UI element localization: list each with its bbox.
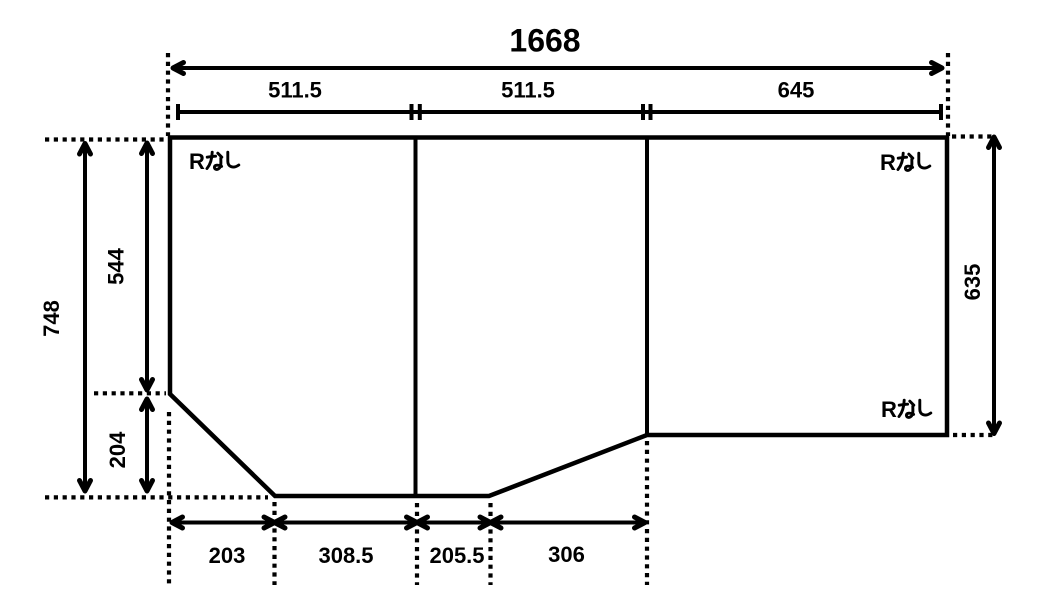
svg-text:306: 306 (548, 542, 585, 567)
svg-text:R: R (880, 150, 896, 175)
svg-text:1668: 1668 (509, 23, 580, 59)
svg-text:308.5: 308.5 (318, 543, 373, 568)
svg-text:203: 203 (209, 543, 246, 568)
svg-text:635: 635 (960, 264, 985, 301)
svg-text:205.5: 205.5 (429, 543, 484, 568)
svg-text:511.5: 511.5 (268, 78, 322, 103)
svg-text:R: R (189, 149, 205, 174)
svg-text:204: 204 (105, 431, 130, 468)
svg-text:511.5: 511.5 (501, 78, 555, 103)
svg-text:645: 645 (778, 78, 815, 103)
svg-text:748: 748 (39, 300, 64, 337)
svg-text:544: 544 (104, 247, 129, 284)
svg-text:R: R (881, 397, 897, 422)
